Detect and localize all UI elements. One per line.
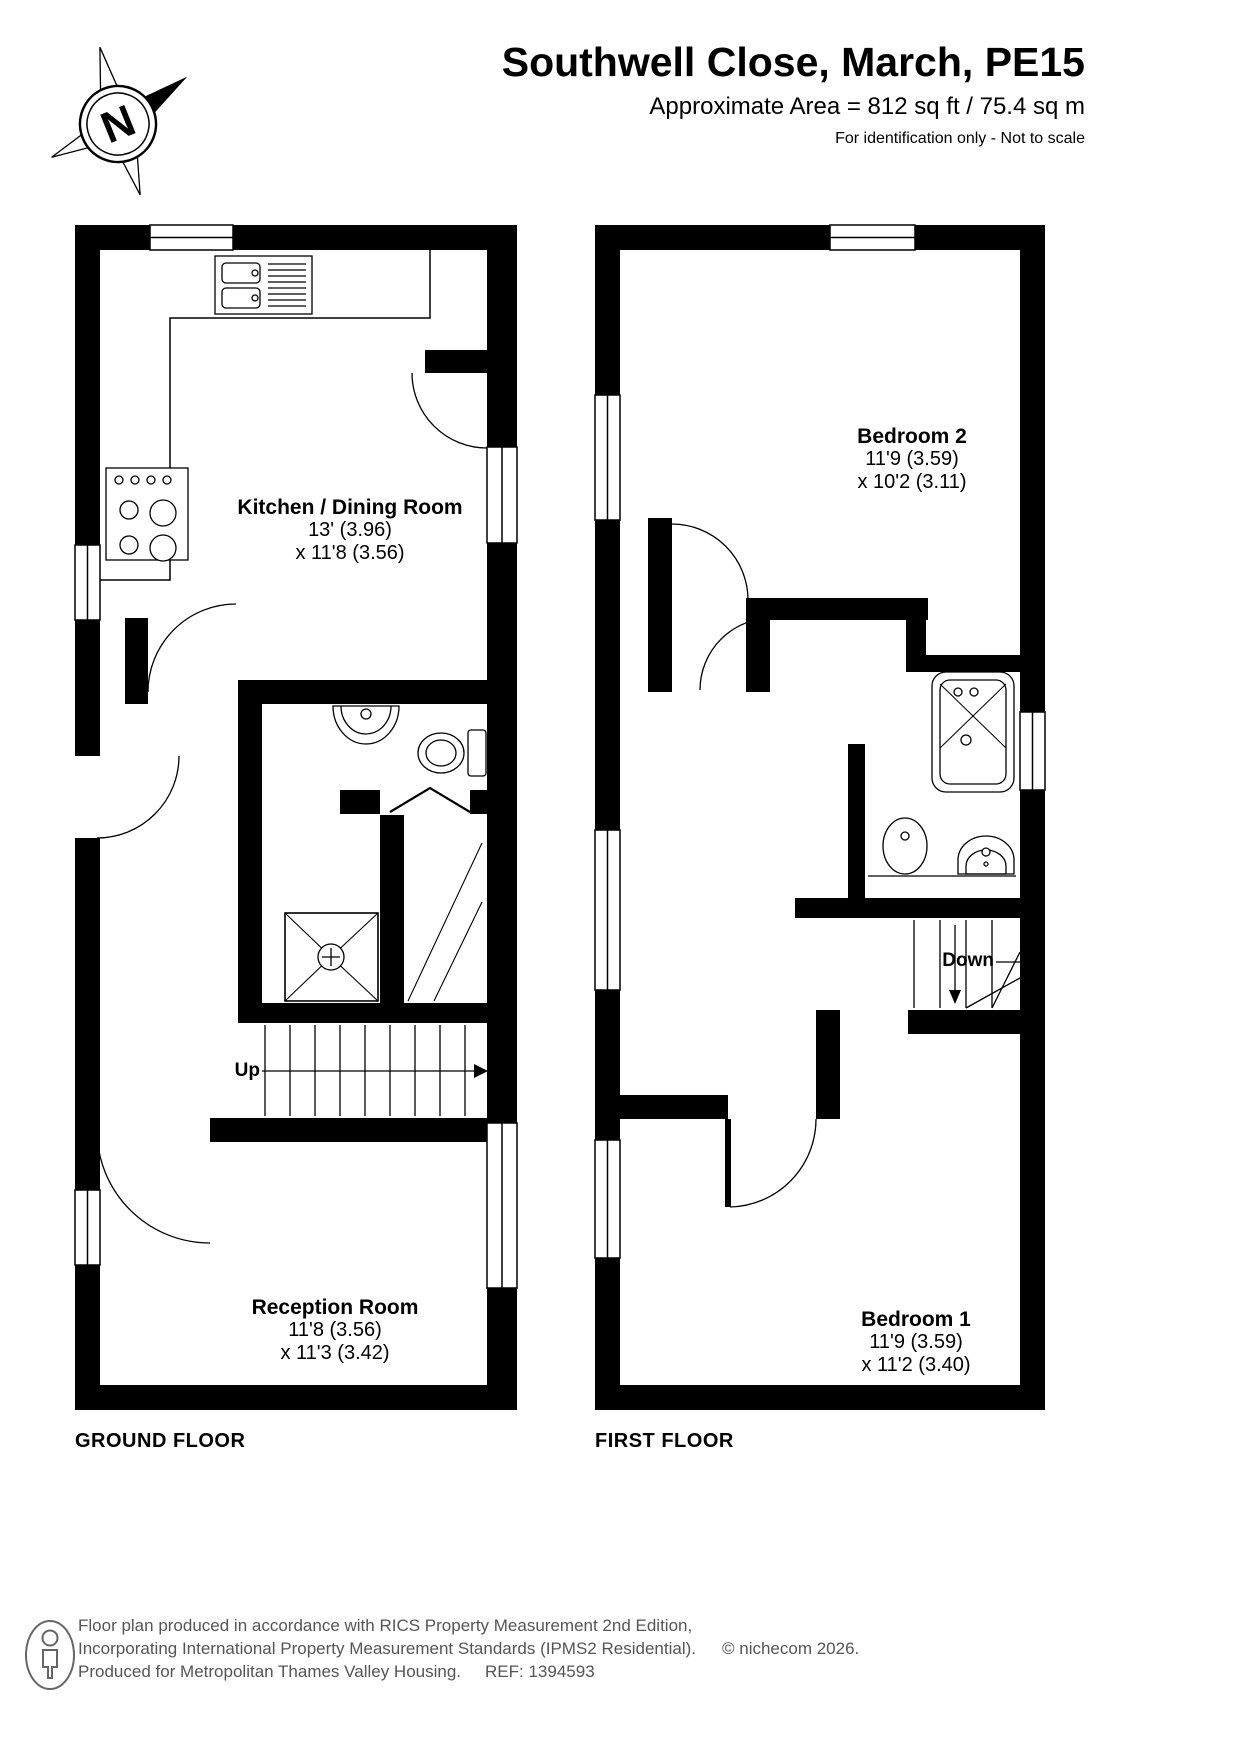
ground-floor-title: GROUND FLOOR [75, 1430, 245, 1453]
compass-icon: N [20, 21, 222, 220]
door-arc [412, 373, 487, 448]
wall [595, 225, 1045, 250]
footer: Floor plan produced in accordance with R… [78, 1614, 859, 1683]
wall [816, 1010, 840, 1119]
copyright: © nichecom 2026. [722, 1639, 859, 1658]
door-arc [97, 756, 179, 838]
wall [848, 744, 865, 898]
room-label-bedroom-1: Bedroom 1 11'9 (3.59) x 11'2 (3.40) [861, 1308, 971, 1377]
wall [210, 1118, 487, 1142]
page-title: Southwell Close, March, PE15 [502, 40, 1085, 84]
wall [238, 680, 487, 704]
wall [595, 1385, 1045, 1410]
wall [340, 790, 380, 814]
plan-header: Southwell Close, March, PE15 Approximate… [502, 40, 1085, 148]
footer-line-2: Incorporating International Property Mea… [78, 1637, 859, 1660]
room-label-reception: Reception Room 11'8 (3.56) x 11'3 (3.42) [252, 1296, 419, 1365]
bathroom-toilet-icon [883, 818, 927, 874]
stairs-up-label: Up [180, 1060, 260, 1082]
first-floor-title: FIRST FLOOR [595, 1430, 734, 1453]
reference-number: REF: 1394593 [485, 1662, 595, 1681]
first-floor-plan [595, 225, 1045, 1410]
footer-line-1: Floor plan produced in accordance with R… [78, 1614, 859, 1637]
down-arrow-icon [949, 990, 961, 1004]
wall [908, 1010, 1020, 1034]
person-logo-icon [26, 1621, 74, 1689]
floorplan-graphics: N [0, 0, 1241, 1755]
bifold-door [390, 788, 470, 812]
wall [75, 225, 517, 250]
footer-line-3: Produced for Metropolitan Thames Valley … [78, 1660, 859, 1683]
scale-disclaimer: For identification only - Not to scale [502, 130, 1085, 148]
stairs-down-label: Down [880, 950, 994, 972]
understair-lines [408, 843, 482, 1001]
door-arc [148, 604, 236, 692]
door-leaf [725, 1119, 731, 1207]
wall [238, 704, 262, 1003]
hob-icon [106, 468, 188, 561]
door-arc [97, 1130, 210, 1243]
wall [470, 790, 487, 814]
bathroom-basin-icon [958, 836, 1014, 874]
door-arc [672, 524, 748, 600]
wall [75, 1385, 517, 1410]
wc-basin-icon [333, 706, 399, 744]
room-label-kitchen-dining: Kitchen / Dining Room 13' (3.96) x 11'8 … [237, 496, 462, 565]
room-label-bedroom-2: Bedroom 2 11'9 (3.59) x 10'2 (3.11) [857, 425, 967, 494]
bath-icon [932, 672, 1014, 792]
wc-toilet-icon [418, 730, 486, 776]
wall [795, 898, 1020, 918]
wall [620, 1095, 728, 1119]
door-opening [75, 756, 100, 838]
ground-floor-plan [75, 225, 517, 1410]
shower-icon [285, 913, 378, 1001]
staircase-up [262, 1025, 488, 1116]
wall [1020, 250, 1045, 1385]
wall [380, 815, 404, 1003]
wall [648, 518, 672, 692]
wall [125, 618, 148, 704]
door-arc [730, 1119, 816, 1207]
kitchen-sink-icon [215, 256, 312, 314]
wall [746, 620, 770, 692]
wall [425, 350, 487, 373]
up-arrow-icon [474, 1064, 488, 1078]
wall [906, 655, 1020, 672]
approximate-area: Approximate Area = 812 sq ft / 75.4 sq m [502, 93, 1085, 121]
wall [238, 1003, 487, 1023]
wall [746, 598, 928, 620]
